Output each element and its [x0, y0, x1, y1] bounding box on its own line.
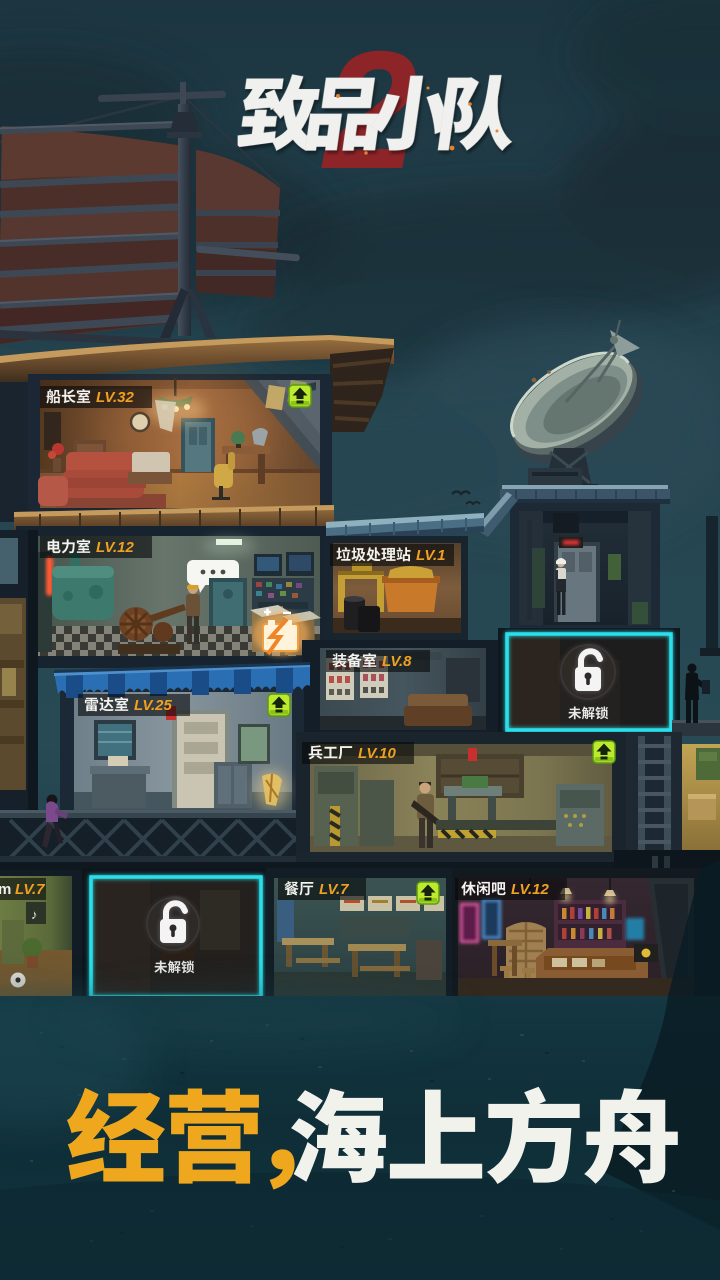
svg-text:LV.25: LV.25 — [134, 697, 172, 714]
svg-text:LV.32: LV.32 — [96, 389, 134, 406]
svg-text:LV.10: LV.10 — [358, 745, 396, 762]
svg-text:LV.8: LV.8 — [382, 653, 412, 670]
svg-text:LV.1: LV.1 — [416, 547, 445, 564]
svg-text:LV.12: LV.12 — [96, 539, 134, 556]
svg-text:LV.12: LV.12 — [511, 881, 549, 898]
svg-text:♪: ♪ — [31, 907, 38, 922]
svg-text:LV.7: LV.7 — [15, 881, 45, 898]
svg-text:m: m — [0, 881, 11, 898]
svg-text:LV.7: LV.7 — [319, 881, 349, 898]
svg-text:2: 2 — [321, 16, 417, 204]
